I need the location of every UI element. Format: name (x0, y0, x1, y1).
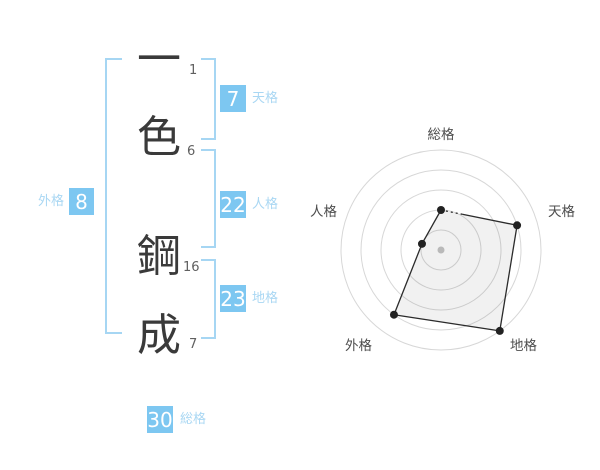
tenkaku-bracket (201, 58, 216, 140)
data-point (437, 206, 445, 214)
name-character: 一 (130, 36, 188, 84)
chikaku-value-badge: 23 (220, 285, 246, 312)
chikaku-bracket (201, 259, 216, 339)
gaikaku-bracket (105, 58, 122, 334)
tenkaku-label: 天格 (252, 92, 278, 106)
jinkaku-value-badge: 22 (220, 191, 246, 218)
data-point (513, 221, 521, 229)
axis-label: 総格 (428, 127, 455, 143)
stroke-count: 1 (189, 64, 197, 78)
gaikaku-label: 外格 (38, 195, 64, 209)
gaikaku-value-badge: 8 (69, 188, 94, 215)
tenkaku-value-badge: 7 (220, 85, 246, 112)
data-point (496, 327, 504, 335)
data-polygon-fill (394, 210, 517, 331)
stroke-count: 16 (183, 261, 200, 275)
chikaku-label: 地格 (252, 292, 278, 306)
axis-label: 外格 (345, 338, 372, 354)
data-point (418, 240, 426, 248)
axis-label: 天格 (548, 204, 576, 220)
soukaku-value-badge: 30 (147, 406, 173, 433)
name-fortune-panel: 一 色 鋼 成 1 6 16 7 7 天格 22 人格 23 地格 外格 8 3… (0, 0, 600, 470)
axis-label: 人格 (310, 204, 337, 220)
soukaku-label: 総格 (180, 413, 206, 427)
stroke-count: 7 (189, 338, 197, 352)
jinkaku-label: 人格 (252, 198, 278, 212)
radar-chart: 総格天格地格外格人格 (300, 100, 600, 380)
data-point (390, 311, 398, 319)
name-character: 色 (130, 114, 188, 162)
stroke-count: 6 (187, 145, 195, 159)
axis-label: 地格 (510, 338, 538, 354)
name-character: 成 (130, 312, 188, 360)
radar-chart-svg: 総格天格地格外格人格 (300, 100, 600, 380)
jinkaku-bracket (201, 149, 216, 248)
name-character: 鋼 (130, 233, 188, 281)
